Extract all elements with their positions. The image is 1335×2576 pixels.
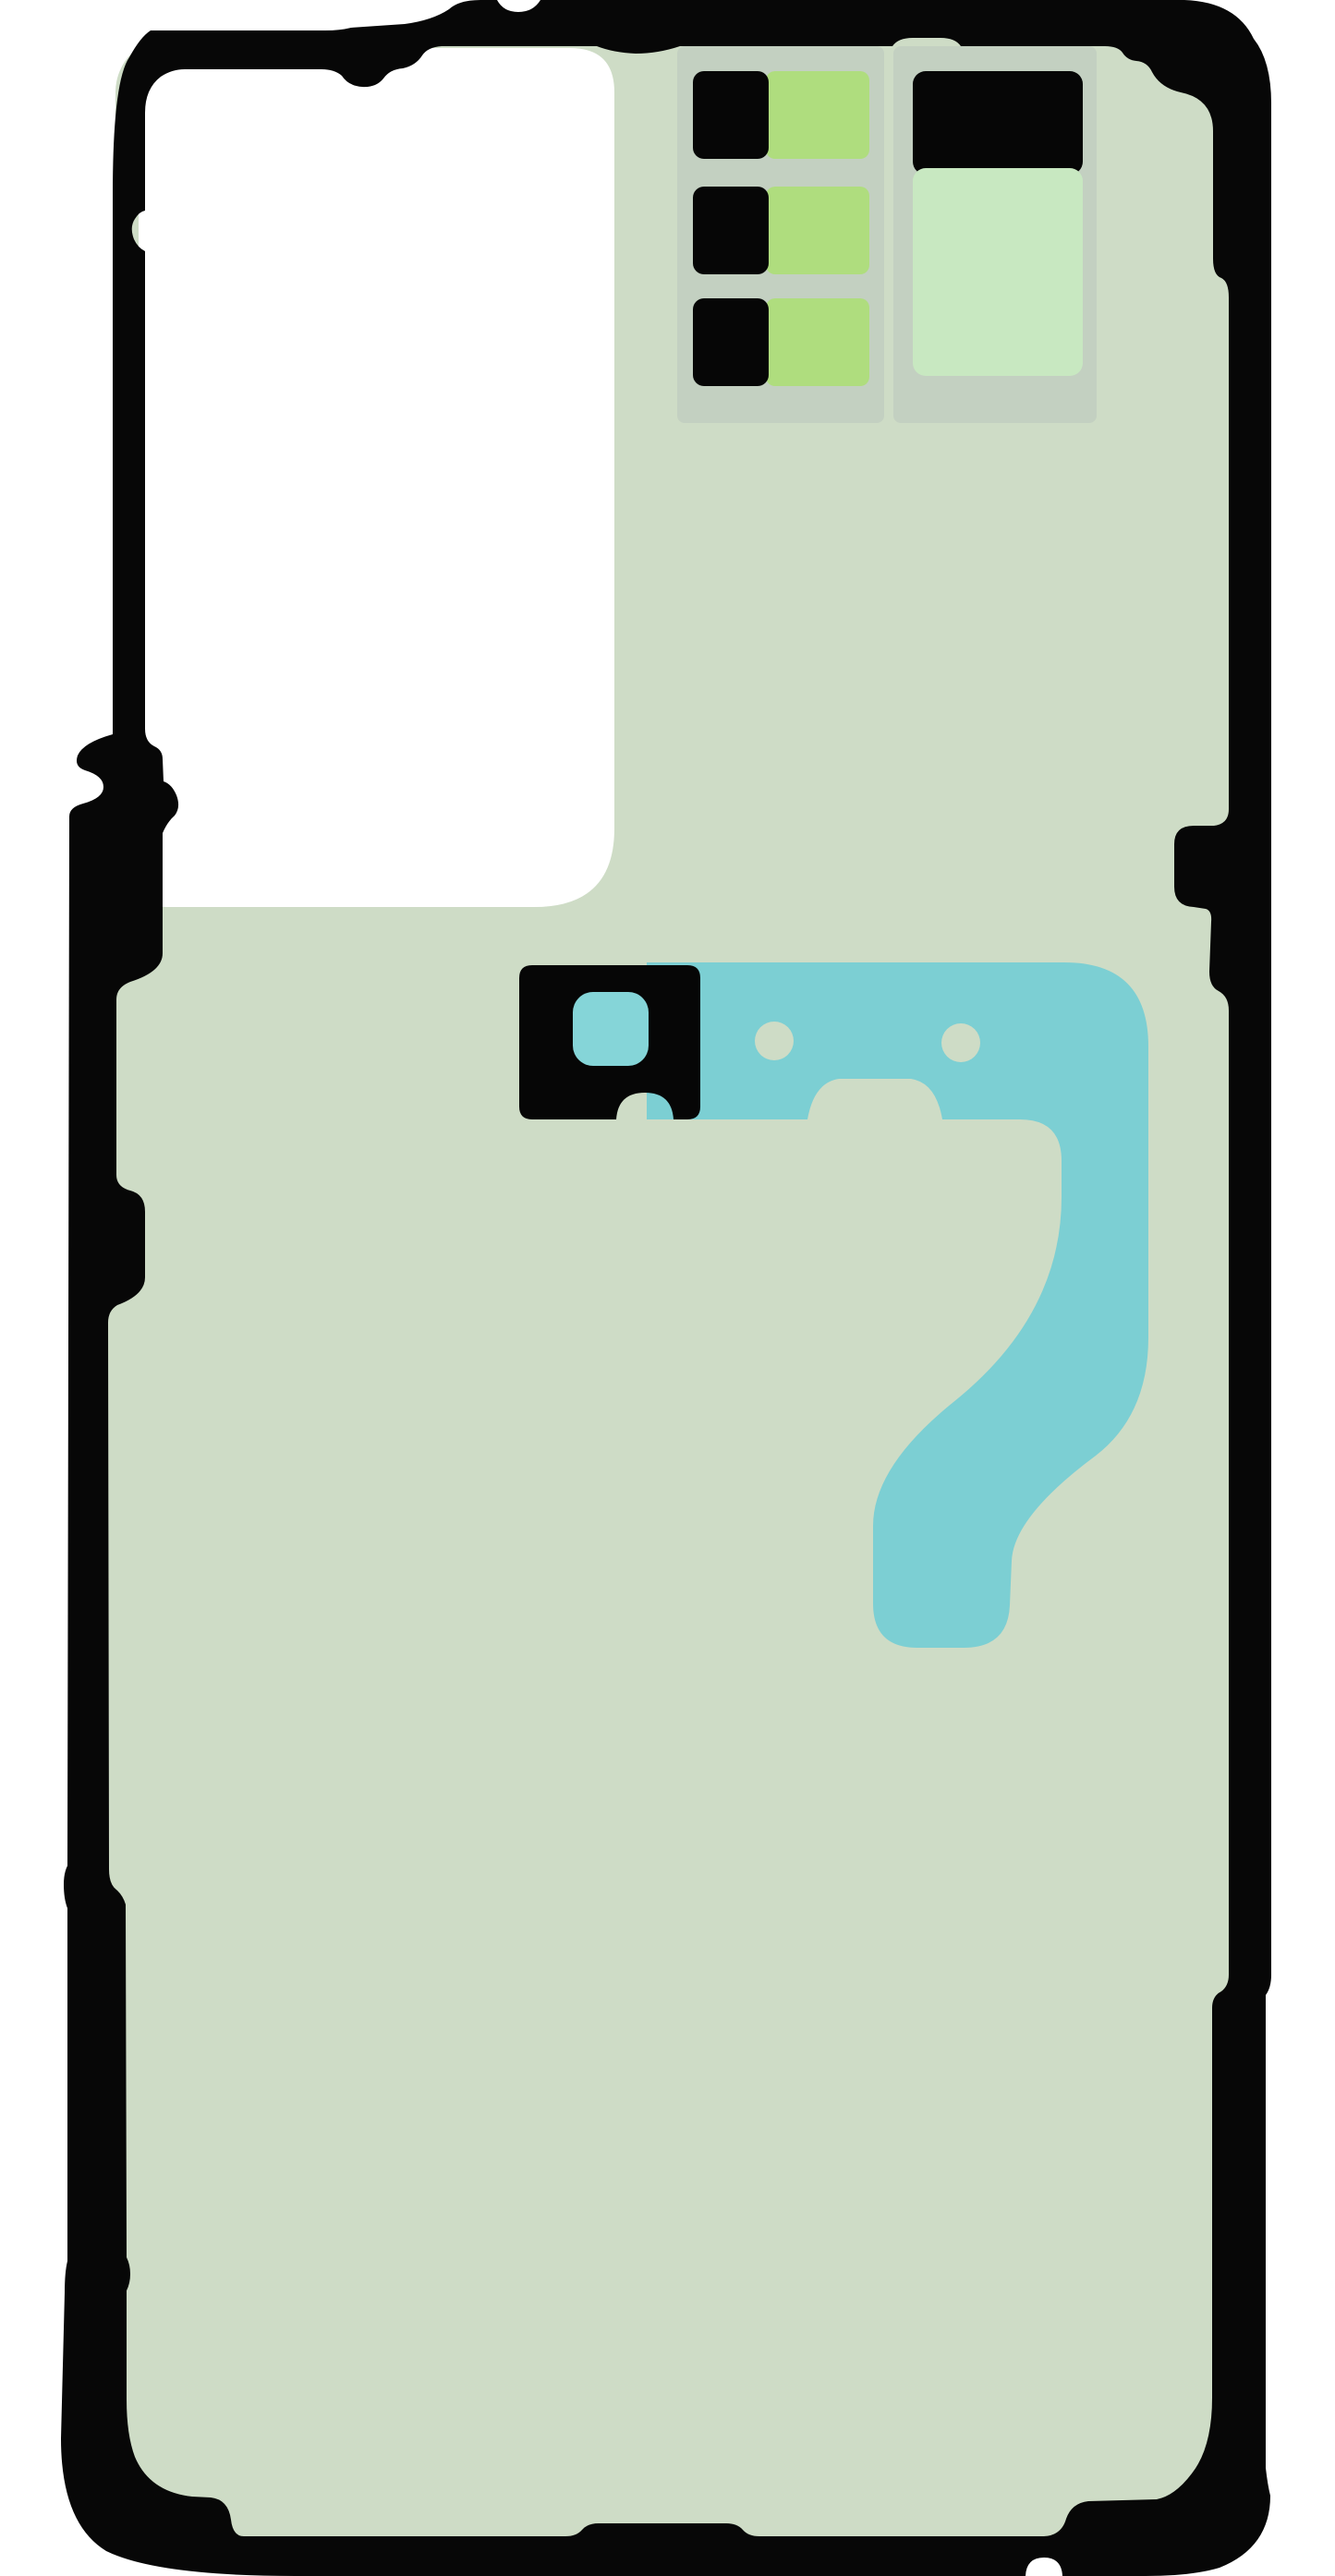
- camera-bracket-window: [573, 992, 649, 1066]
- adhesive-card-green-body: [913, 168, 1083, 376]
- adhesive-piece-rows: [693, 71, 869, 386]
- adhesive-piece-black-3: [693, 298, 769, 386]
- adhesive-piece-black-2: [693, 187, 769, 274]
- adhesive-piece-black-1: [693, 71, 769, 159]
- camera-area-cutout: [139, 48, 614, 907]
- adhesive-piece-green-1: [766, 71, 869, 159]
- adhesive-piece-green-2: [766, 187, 869, 274]
- flex-strip-hole-right: [941, 1023, 980, 1062]
- adhesive-piece-green-3: [766, 298, 869, 386]
- flex-strip-hole-left: [755, 1022, 794, 1060]
- adhesive-card-black-top: [913, 71, 1083, 175]
- adhesive-card: [913, 71, 1083, 376]
- adhesive-sheet-illustration: [0, 0, 1335, 2576]
